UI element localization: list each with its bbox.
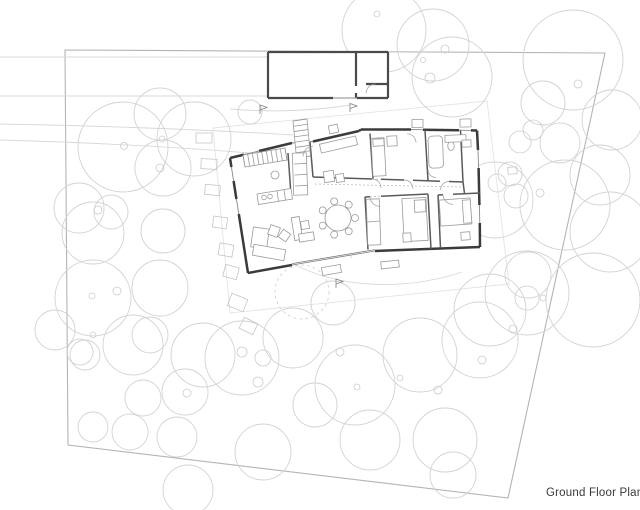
drawing-title-label: Ground Floor Plan	[546, 487, 640, 499]
floor-plan-canvas	[0, 0, 640, 510]
garage-floor	[268, 52, 388, 98]
planned-tree-dashed	[275, 265, 329, 319]
floor-plan-page: Ground Floor Plan	[0, 0, 640, 510]
site-boundary	[65, 50, 605, 498]
